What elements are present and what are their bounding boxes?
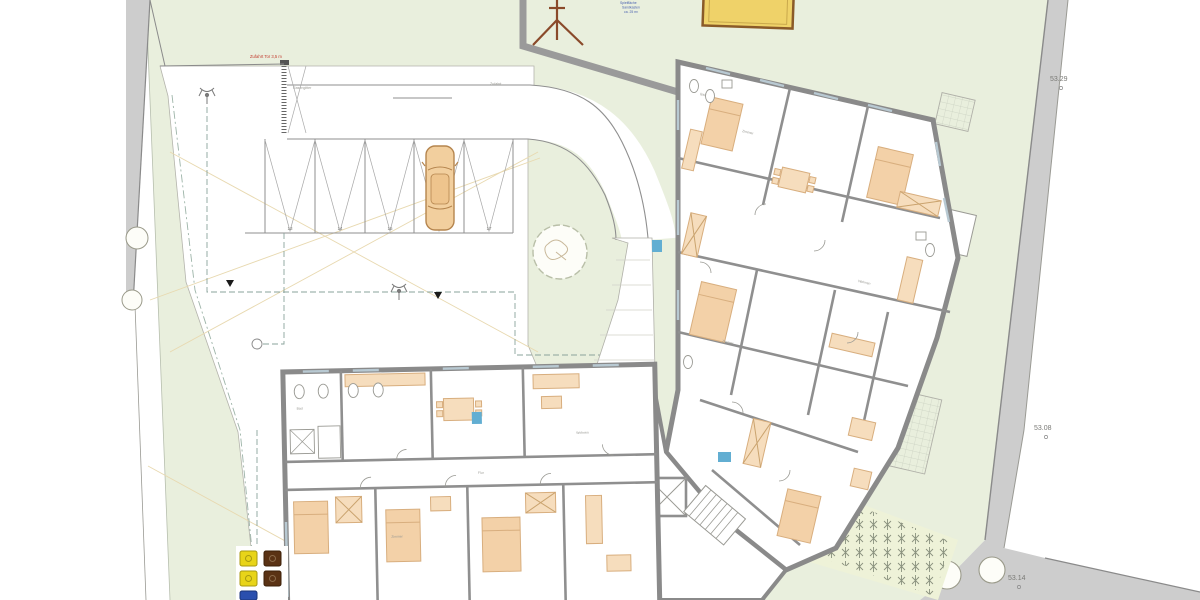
elevation-label: 53.29 (1050, 76, 1068, 83)
svg-text:ca. 25 m²: ca. 25 m² (624, 10, 639, 14)
shower-fixture (472, 412, 482, 424)
bin-yellow (240, 571, 257, 586)
gate-annotation: Zufahrt Tor 3,5 m (250, 54, 282, 59)
tree-icon (126, 227, 148, 249)
tree-icon (979, 557, 1005, 583)
site-plan-canvas: 53.29 53.08 53.14 Spielfläche Sandkasten… (0, 0, 1200, 600)
car (422, 146, 458, 230)
svg-text:14: 14 (337, 226, 343, 231)
left-margin (0, 0, 126, 600)
balcony (935, 93, 975, 132)
floor-plan-image: 53.29 53.08 53.14 Spielfläche Sandkasten… (0, 0, 1200, 600)
svg-text:17: 17 (486, 226, 492, 231)
svg-text:Wohnen: Wohnen (576, 431, 589, 435)
bin-yellow (240, 551, 257, 566)
bin-blue (240, 591, 257, 600)
bin-brown (264, 571, 281, 586)
waste-bins (236, 546, 288, 600)
svg-text:Bad: Bad (297, 407, 303, 411)
sandbox (703, 0, 794, 29)
svg-text:13: 13 (287, 226, 293, 231)
left-road (122, 0, 150, 600)
svg-text:Spielfläche: Spielfläche (620, 1, 637, 5)
surface-label: Zufahrt (490, 82, 501, 86)
elevation-label: 53.08 (1034, 425, 1052, 432)
manhole-icon (252, 339, 262, 349)
tree-icon (122, 290, 142, 310)
building-left-wing: Bad Zimmer Wohnen Flur (283, 364, 660, 600)
svg-text:Sandkasten: Sandkasten (622, 6, 640, 10)
svg-text:Flur: Flur (478, 471, 485, 475)
elevation-label: 53.14 (1008, 575, 1026, 582)
svg-text:15: 15 (387, 226, 393, 231)
svg-text:Zimmer: Zimmer (391, 535, 403, 539)
surface-label: Rasengitter (293, 86, 312, 90)
tree-icon (533, 225, 587, 279)
bin-brown (264, 551, 281, 566)
